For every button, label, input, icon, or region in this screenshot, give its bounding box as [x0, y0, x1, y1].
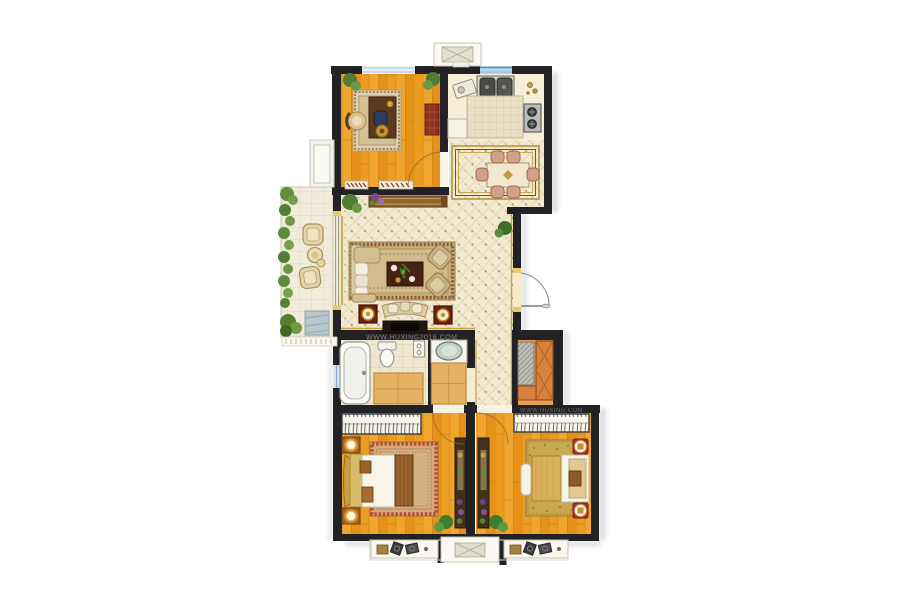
svg-text:WWW.HUXING.COM: WWW.HUXING.COM	[520, 408, 583, 414]
